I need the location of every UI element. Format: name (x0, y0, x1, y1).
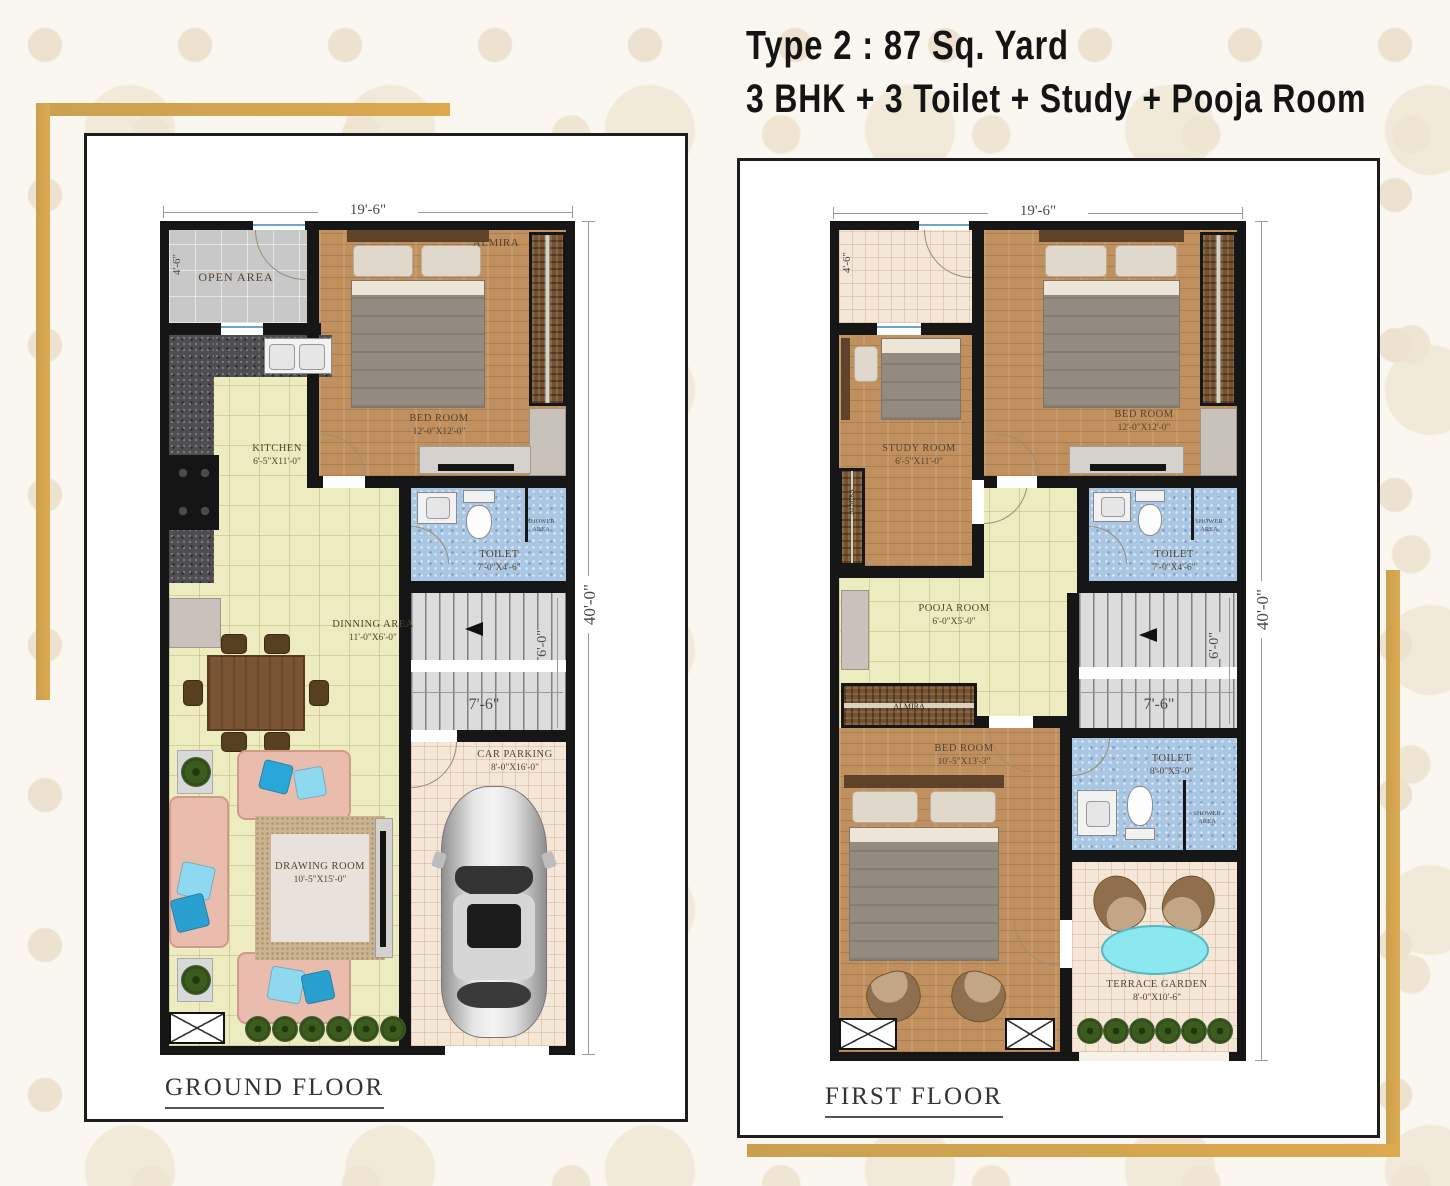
plant (299, 1016, 325, 1042)
car-sunroof (467, 904, 521, 948)
cushion (266, 965, 305, 1004)
stairs-landing (1079, 667, 1237, 679)
first-floor-panel: 19'-6" 40'-0" (737, 158, 1380, 1138)
stair-run-label: 6'-0" (535, 630, 551, 657)
room-name: TOILET (449, 548, 549, 562)
shaft-box (1005, 1018, 1055, 1050)
wash-basin (1093, 492, 1131, 522)
dim-height-label: 40'-0" (1252, 581, 1274, 638)
tv (438, 464, 514, 471)
tv-unit (1069, 446, 1184, 474)
plant-pot (177, 958, 213, 1002)
wall (1060, 728, 1072, 1052)
gold-border-left (36, 103, 50, 700)
dim-tick (163, 206, 164, 218)
toilet-bottom-label: TOILET 8'-0"X5'-0" (1124, 752, 1219, 778)
door-opening (411, 730, 457, 742)
bed-pillow (852, 791, 918, 823)
almira-wardrobe: ALMIRA (839, 468, 865, 566)
garage-opening (445, 1046, 549, 1055)
room-name: TOILET (1124, 548, 1224, 562)
bed-headboard (841, 338, 850, 420)
shower-area-label: SHOWER AREA (519, 518, 563, 534)
kitchen-label: KITCHEN 6'-5"X11'-0" (227, 442, 327, 468)
rug-center (271, 834, 369, 942)
dim-tick (582, 221, 595, 222)
plant-pot (177, 750, 213, 794)
window (253, 221, 305, 230)
almira-label: ALMIRA (848, 489, 856, 515)
room-name: TOILET (1124, 752, 1219, 766)
wall (1060, 728, 1237, 738)
single-bed (841, 338, 961, 420)
sofa (237, 750, 351, 820)
bed-blanket (1043, 280, 1180, 408)
plant (1103, 1018, 1129, 1044)
window (919, 221, 969, 230)
plant (1207, 1018, 1233, 1044)
door-opening (323, 476, 365, 488)
dim-line-stairs (413, 692, 563, 693)
room-name: KITCHEN (227, 442, 327, 456)
room-name: POOJA ROOM (894, 602, 1014, 616)
tv (380, 831, 386, 947)
kitchen-sink (264, 338, 332, 374)
door-opening (989, 716, 1033, 728)
side-dim-label: 4'-6" (171, 254, 183, 275)
open-area-label: OPEN AREA (181, 270, 291, 286)
double-bed (1039, 230, 1184, 410)
plant (1181, 1018, 1207, 1044)
toilet-wc (1125, 782, 1155, 840)
door-opening (972, 480, 984, 524)
bed-headboard (844, 775, 1004, 788)
door-opening (997, 476, 1037, 488)
room-size: 6'-5"X11'-0" (869, 456, 969, 468)
car-rear-window (457, 982, 531, 1008)
sink-basin (299, 344, 325, 370)
dim-tick (1242, 207, 1243, 219)
bedroom-label: BED ROOM 12'-0"X12'-0" (1079, 408, 1209, 434)
room-size: 12'-0"X12'-0" (369, 426, 509, 438)
first-floor-plan: 4'-6" BED ROOM 12'-0"X12'-0" STUDY ROOM … (830, 221, 1246, 1061)
dining-chair (221, 634, 247, 654)
room-name: BED ROOM (1079, 408, 1209, 422)
room-name: DINNING AREA (317, 618, 429, 632)
stair-width-label: 7'-6" (449, 696, 519, 714)
dining-chair (309, 680, 329, 706)
almira-wardrobe (529, 232, 566, 406)
car-parking-label: CAR PARKING 8'-0"X16'-0" (465, 748, 565, 774)
floor-plan-page: { "title": { "line1": "Type 2 : 87 Sq. Y… (0, 0, 1450, 1186)
dim-tick (1255, 1060, 1268, 1061)
basin-bowl (1101, 497, 1125, 517)
wall (1077, 488, 1089, 593)
plant (353, 1016, 379, 1042)
cushion (293, 766, 328, 801)
plant (1129, 1018, 1155, 1044)
plant (181, 757, 211, 787)
stair-run-label: 6'-0" (1207, 632, 1223, 659)
wall (839, 566, 972, 578)
basin-bowl (1086, 801, 1110, 827)
plant (380, 1016, 406, 1042)
gold-border-bottom (747, 1144, 1400, 1157)
wc-bowl (466, 505, 492, 539)
terrace-garden-label: TERRACE GARDEN 8'-0"X10'-6" (1097, 978, 1217, 1004)
room-name: DRAWING ROOM (271, 860, 369, 874)
shaft-box (839, 1018, 897, 1050)
dim-width-label: 19'-6" (988, 203, 1088, 220)
first-floor-name: FIRST FLOOR (825, 1083, 1003, 1118)
almira-wardrobe: ALMIRA (841, 683, 977, 728)
room-size: 8'-0"X10'-6" (1097, 992, 1217, 1004)
dim-height-label: 40'-0" (579, 576, 601, 633)
bed-pillow (1115, 245, 1177, 277)
door-opening (1060, 920, 1072, 968)
cushion (300, 969, 336, 1005)
toilet-top-label: TOILET 7'-0"X4'-6" (1124, 548, 1224, 574)
terrace-table (1101, 925, 1209, 975)
plant (272, 1016, 298, 1042)
room-name: CAR PARKING (465, 748, 565, 762)
room-size: 7'-0"X4'-6" (449, 562, 549, 574)
dim-line-stairs (1081, 692, 1235, 693)
pooja-mat (841, 590, 869, 670)
wall (1077, 581, 1237, 593)
shower-partition (525, 488, 528, 542)
bed-blanket (351, 280, 485, 408)
bedroom-label: BED ROOM 12'-0"X12'-0" (369, 412, 509, 438)
dim-line-run (1229, 598, 1230, 724)
wall (1060, 850, 1237, 862)
dining-table (207, 655, 305, 731)
dining-chair (264, 732, 290, 752)
bedroom2-label: BED ROOM 10'-5"X13'-3" (899, 742, 1029, 768)
dim-tick (833, 207, 834, 219)
window (877, 323, 921, 335)
wc-tank (1135, 490, 1165, 502)
room-size: 8'-0"X5'-0" (1124, 766, 1219, 778)
dim-line-height (1261, 221, 1262, 1061)
dim-tick (582, 1054, 595, 1055)
plant (1155, 1018, 1181, 1044)
room-size: 12'-0"X12'-0" (1079, 422, 1209, 434)
ground-floor-name: GROUND FLOOR (165, 1074, 384, 1109)
sink-basin (269, 344, 295, 370)
stairs-direction-arrow (465, 622, 483, 636)
shower-area-label: SHOWER AREA (1187, 518, 1231, 534)
wall (1067, 593, 1079, 728)
wc-tank (463, 490, 495, 503)
wash-basin (1077, 790, 1117, 836)
title-line-2: 3 BHK + 3 Toilet + Study + Pooja Room (746, 77, 1306, 122)
room-size: 10'-5"X13'-3" (899, 756, 1029, 768)
tv-cabinet (375, 818, 393, 958)
almira-label: ALMIRA (451, 236, 541, 250)
dining-chair (183, 680, 203, 706)
bed-pillow (854, 346, 878, 382)
room-name: BED ROOM (369, 412, 509, 426)
stairs-landing (411, 660, 566, 672)
stairs-direction-arrow (1139, 628, 1157, 642)
tv (1090, 464, 1166, 471)
room-size: 8'-0"X16'-0" (465, 762, 565, 774)
stove (169, 455, 219, 530)
wash-basin (417, 492, 457, 524)
plant (1077, 1018, 1103, 1044)
basin-bowl (426, 497, 450, 519)
bed-pillow (1045, 245, 1107, 277)
toilet-label: TOILET 7'-0"X4'-6" (449, 548, 549, 574)
rug (255, 816, 385, 960)
wall (399, 488, 411, 593)
bed-headboard (1039, 230, 1184, 242)
shaft-box (169, 1012, 225, 1044)
wall (399, 593, 411, 730)
room-size: 6'-5"X11'-0" (227, 456, 327, 468)
double-bed (844, 775, 1004, 963)
stair-width-label: 7'-6" (1124, 696, 1194, 714)
wall (307, 230, 319, 323)
room-size: 6'-0"X5'-0" (894, 616, 1014, 628)
room-name: TERRACE GARDEN (1097, 978, 1217, 992)
dining-chair (221, 732, 247, 752)
tv-unit (419, 446, 531, 474)
gold-border-right (1386, 570, 1400, 1157)
almira-label: ALMIRA (884, 702, 934, 712)
shower-area-label: SHOWER AREA (1185, 810, 1229, 826)
wc-tank (1125, 828, 1155, 840)
almira-wardrobe (1200, 232, 1237, 406)
ground-floor-plan: OPEN AREA 4'-6" ALMIRA BED ROOM 12'-0"X1… (160, 221, 575, 1055)
terrace-opening (1079, 1052, 1229, 1061)
room-size: 7'-0"X4'-6" (1124, 562, 1224, 574)
toilet-wc (1135, 490, 1165, 538)
dim-width-label: 19'-6" (318, 202, 418, 219)
pooja-room-label: POOJA ROOM 6'-0"X5'-0" (894, 602, 1014, 628)
wall (399, 581, 566, 593)
toilet-wc (463, 490, 495, 540)
dim-tick (572, 206, 573, 218)
ground-floor-panel: 19'-6" 40'-0" OPEN AREA 4'-6" (84, 133, 688, 1122)
wall (972, 335, 984, 578)
title-block: Type 2 : 87 Sq. Yard 3 BHK + 3 Toilet + … (746, 22, 1446, 122)
plant (326, 1016, 352, 1042)
side-dim-label: 4'-6" (841, 252, 853, 273)
drawing-room-label: DRAWING ROOM 10'-5"X15'-0" (271, 860, 369, 886)
plant (245, 1016, 271, 1042)
wall (399, 742, 411, 1046)
bed-blanket (881, 338, 961, 420)
dim-line-height (588, 221, 589, 1055)
gold-border-top (36, 103, 450, 116)
wall (972, 230, 984, 335)
bed-pillow (930, 791, 996, 823)
wc-bowl (1127, 786, 1153, 826)
room-size: 11'-0"X6'-0" (317, 632, 429, 644)
title-line-1: Type 2 : 87 Sq. Yard (746, 22, 1306, 69)
dresser (529, 408, 566, 476)
bed-pillow (353, 245, 413, 277)
dim-line-run (557, 598, 558, 728)
study-room-label: STUDY ROOM 6'-5"X11'-0" (869, 442, 969, 468)
plant (181, 965, 211, 995)
bed-blanket (849, 827, 999, 961)
room-name: STUDY ROOM (869, 442, 969, 456)
car-top-view (441, 786, 547, 1038)
window (221, 323, 263, 335)
dining-chair (264, 634, 290, 654)
double-bed (347, 230, 489, 410)
dim-tick (1255, 221, 1268, 222)
room-size: 10'-5"X15'-0" (271, 874, 369, 886)
wc-bowl (1138, 504, 1162, 536)
dining-label: DINNING AREA 11'-0"X6'-0" (317, 618, 429, 644)
room-name: BED ROOM (899, 742, 1029, 756)
